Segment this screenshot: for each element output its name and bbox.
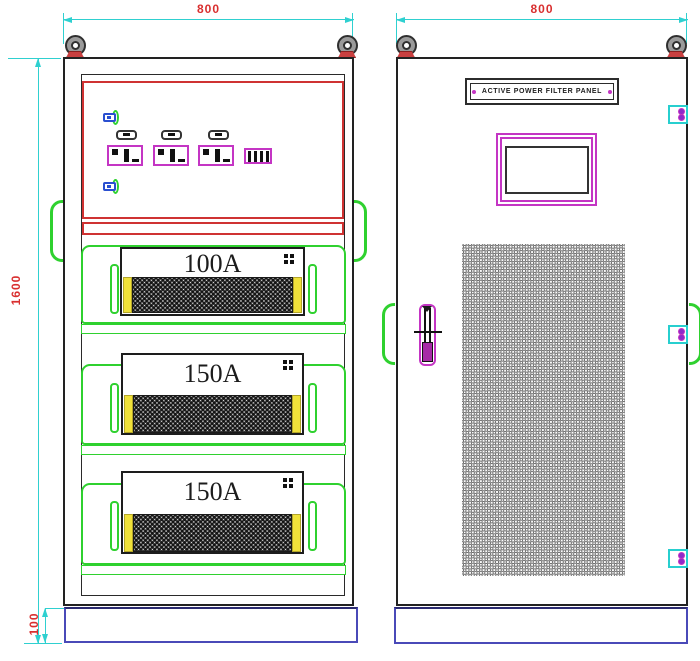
dimension-arrow-icon (396, 17, 405, 23)
slide-rail-bracket (308, 501, 317, 551)
module-side-strip (293, 277, 302, 313)
dimension-line-left-width (63, 19, 354, 20)
extension-line (63, 13, 64, 44)
plinth-base (64, 607, 358, 643)
module-indicator-dots-icon (283, 478, 294, 489)
side-handle (382, 303, 395, 365)
dimension-arrow-icon (63, 17, 72, 23)
filter-module-drawer: 150A (121, 471, 304, 554)
module-indicator-dots-icon (284, 254, 295, 265)
breaker-compartment (82, 81, 344, 219)
module-indicator-dots-icon (283, 360, 294, 371)
dimension-label-left-width: 800 (63, 2, 354, 16)
nameplate-text: ACTIVE POWER FILTER PANEL (482, 88, 602, 95)
module-side-strip (123, 277, 132, 313)
module-vent-grille (133, 514, 292, 552)
module-rating-label: 150A (123, 355, 302, 393)
terminal-lug-icon (103, 179, 121, 196)
dimension-arrow-icon (42, 608, 48, 617)
bay-shelf (81, 324, 346, 334)
cad-drawing-canvas: 800 800 1600 100 (0, 0, 700, 661)
toggle-switch-icon (161, 130, 182, 140)
circuit-breaker-icon (198, 145, 234, 166)
module-side-strip (124, 514, 133, 552)
dimension-line-height (38, 58, 39, 644)
terminal-block-icon (244, 148, 272, 164)
module-side-strip (292, 395, 301, 433)
module-vent-grille (133, 395, 292, 433)
filter-module-drawer: 150A (121, 353, 304, 435)
dimension-arrow-icon (42, 634, 48, 643)
filter-module-drawer: 100A (120, 247, 305, 316)
nameplate-frame: ACTIVE POWER FILTER PANEL (470, 83, 614, 100)
toggle-switch-icon (208, 130, 229, 140)
module-vent-grille (132, 277, 293, 313)
side-handle (50, 200, 63, 262)
slide-rail-bracket (110, 264, 119, 314)
extension-line (686, 13, 687, 44)
extension-line (8, 58, 61, 59)
hinge-icon (668, 549, 688, 568)
slide-rail-bracket (308, 383, 317, 433)
side-handle (689, 303, 700, 365)
dimension-label-base-height: 100 (27, 600, 41, 648)
dimension-label-height: 1600 (9, 264, 23, 316)
left-cabinet-open-view: 100A 150A 150A (63, 57, 354, 606)
circuit-breaker-icon (107, 145, 143, 166)
dimension-label-right-width: 800 (396, 2, 688, 16)
circuit-breaker-icon (153, 145, 189, 166)
toggle-switch-icon (116, 130, 137, 140)
nameplate: ACTIVE POWER FILTER PANEL (465, 78, 619, 105)
extension-line (45, 608, 64, 609)
slide-rail-bracket (110, 383, 119, 433)
slide-rail-bracket (308, 264, 317, 314)
hinge-icon (668, 105, 688, 124)
module-side-strip (292, 514, 301, 552)
hmi-display-screen (505, 146, 589, 194)
terminal-lug-icon (103, 110, 121, 127)
compartment-divider-strip (82, 222, 344, 235)
module-rating-label: 100A (122, 249, 303, 279)
door-handle (419, 304, 436, 366)
plinth-base (394, 607, 688, 644)
module-side-strip (124, 395, 133, 433)
door-vent-perforation (462, 244, 625, 576)
slide-rail-bracket (110, 501, 119, 551)
right-cabinet-door-view: ACTIVE POWER FILTER PANEL (396, 57, 688, 606)
dimension-line-right-width (396, 19, 688, 20)
side-handle (354, 200, 367, 262)
module-rating-label: 150A (123, 473, 302, 511)
dimension-arrow-icon (35, 58, 41, 67)
hinge-icon (668, 325, 688, 344)
bay-shelf (81, 565, 346, 575)
bay-shelf (81, 445, 346, 455)
